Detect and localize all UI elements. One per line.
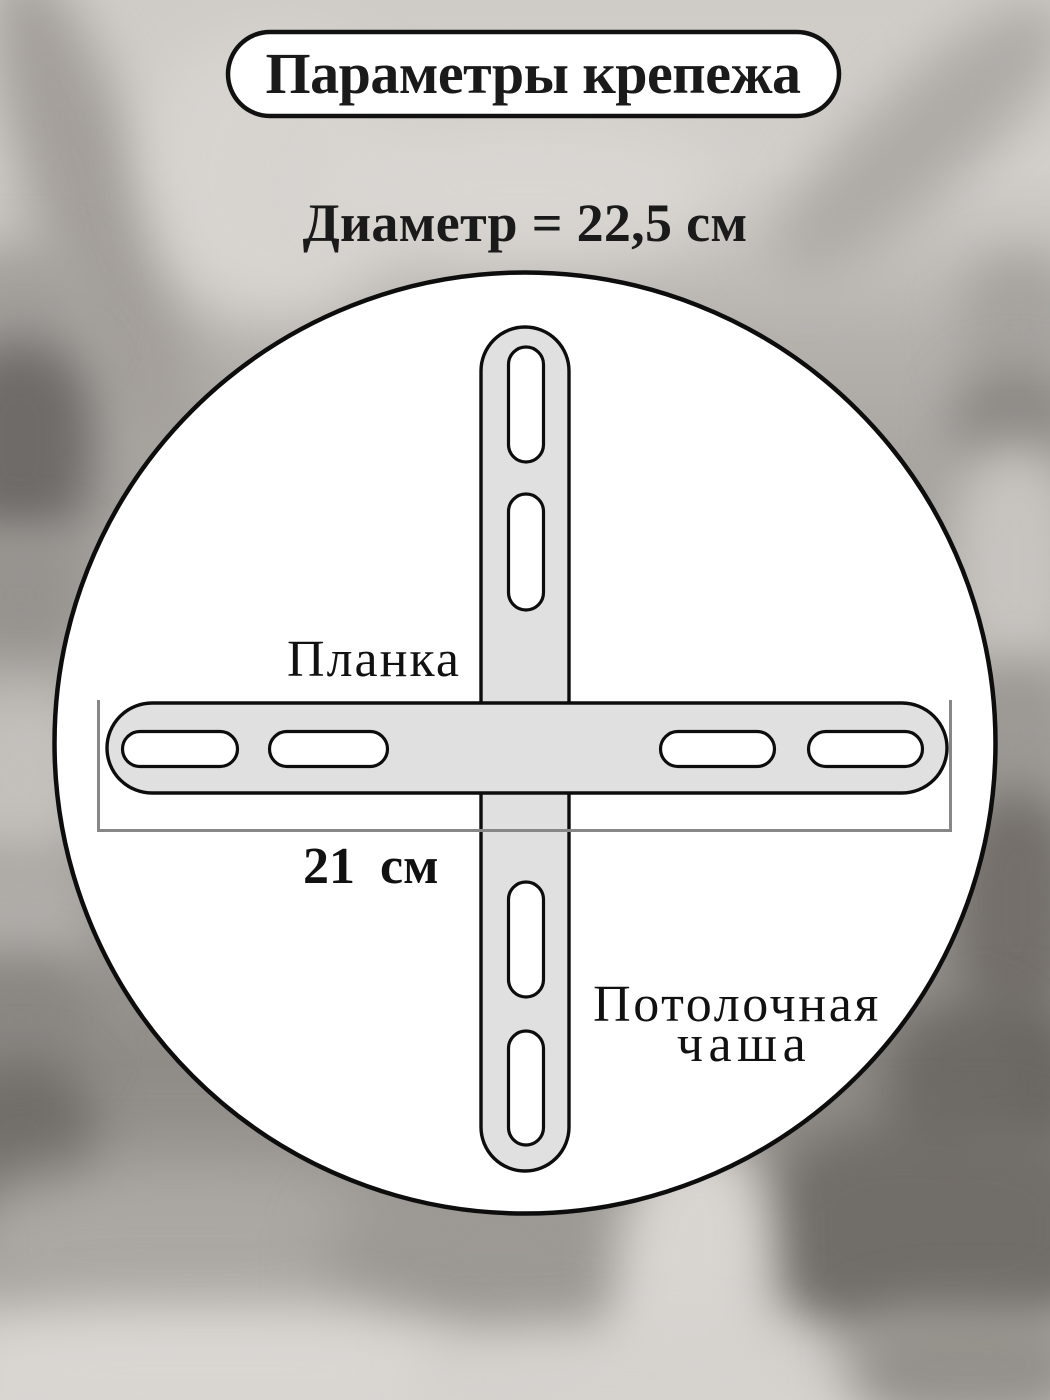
svg-text:чаша: чаша	[677, 1016, 811, 1073]
svg-text:Параметры крепежа: Параметры крепежа	[266, 41, 801, 106]
svg-text:Планка: Планка	[287, 631, 461, 688]
svg-text:Диаметр = 22,5 см: Диаметр = 22,5 см	[303, 193, 748, 253]
